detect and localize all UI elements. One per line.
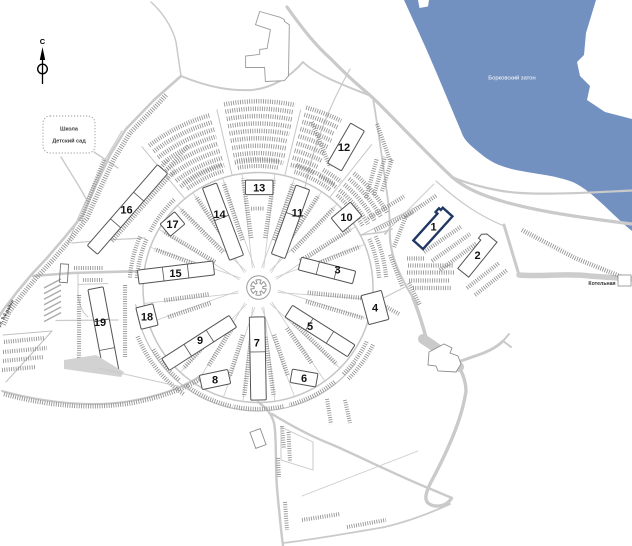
svg-text:15: 15 xyxy=(169,268,181,280)
svg-text:14: 14 xyxy=(213,209,226,221)
svg-text:6: 6 xyxy=(301,373,307,385)
svg-text:5: 5 xyxy=(307,321,313,333)
svg-text:Школа: Школа xyxy=(60,127,79,133)
svg-text:9: 9 xyxy=(197,335,203,347)
svg-text:Детский сад: Детский сад xyxy=(52,138,86,145)
svg-text:2: 2 xyxy=(474,250,480,262)
svg-text:7: 7 xyxy=(254,337,260,349)
svg-text:С: С xyxy=(40,37,46,46)
svg-text:ул. 9-й район: ул. 9-й район xyxy=(0,298,15,327)
svg-text:4: 4 xyxy=(372,302,379,314)
svg-text:8: 8 xyxy=(212,374,218,386)
svg-text:18: 18 xyxy=(141,311,153,323)
svg-text:3: 3 xyxy=(334,264,340,276)
svg-text:Котельная: Котельная xyxy=(588,281,615,287)
svg-text:17: 17 xyxy=(166,219,178,231)
svg-text:13: 13 xyxy=(253,182,265,194)
svg-text:Борковский затон: Борковский затон xyxy=(488,75,535,82)
svg-text:19: 19 xyxy=(94,317,106,329)
svg-text:11: 11 xyxy=(292,207,304,219)
svg-text:10: 10 xyxy=(340,212,352,224)
svg-text:16: 16 xyxy=(120,204,132,216)
svg-text:12: 12 xyxy=(338,142,350,154)
svg-text:1: 1 xyxy=(430,222,436,234)
